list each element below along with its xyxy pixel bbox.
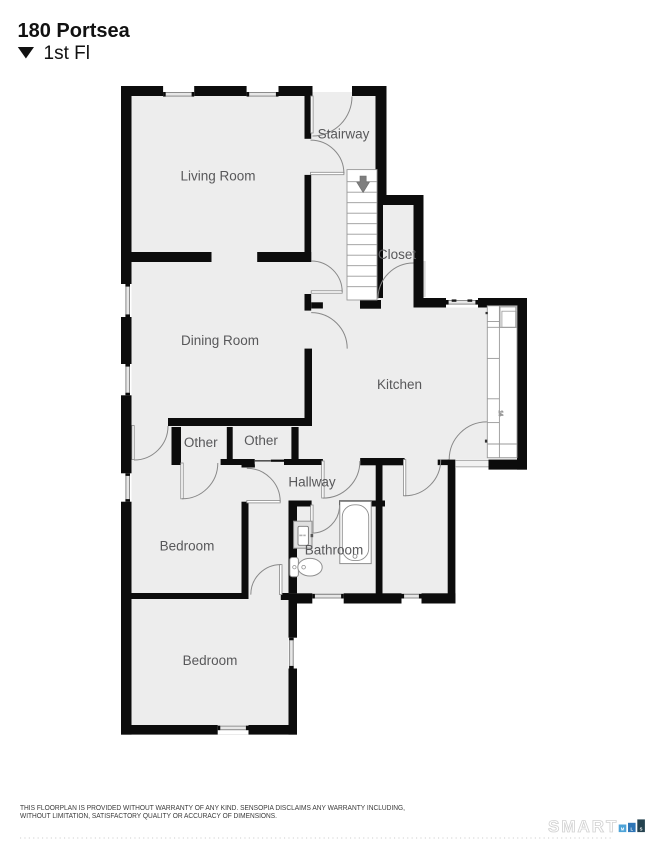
svg-text:Dining Room: Dining Room	[181, 333, 259, 348]
svg-text:SMART: SMART	[548, 817, 618, 836]
svg-text:Kitchen: Kitchen	[377, 377, 422, 392]
svg-text:Hallway: Hallway	[288, 475, 336, 490]
svg-text:Bedroom: Bedroom	[183, 653, 238, 668]
svg-text:Stairway: Stairway	[318, 127, 370, 142]
svg-text:Other: Other	[244, 433, 278, 448]
svg-text:14: 14	[497, 411, 503, 417]
svg-text:Closet: Closet	[378, 247, 417, 262]
svg-text:1st Fl: 1st Fl	[44, 43, 90, 64]
svg-text:WITHOUT LIMITATION, SATISFACTO: WITHOUT LIMITATION, SATISFACTORY QUALITY…	[20, 813, 277, 820]
svg-text:Bathroom: Bathroom	[305, 543, 364, 558]
svg-text:Bedroom: Bedroom	[160, 539, 215, 554]
svg-text:180 Portsea: 180 Portsea	[18, 20, 131, 42]
svg-text:Living Room: Living Room	[180, 169, 255, 184]
svg-text:S: S	[640, 827, 643, 832]
svg-text:L: L	[630, 827, 633, 832]
svg-text:THIS FLOORPLAN IS PROVIDED WIT: THIS FLOORPLAN IS PROVIDED WITHOUT WARRA…	[20, 805, 405, 812]
svg-text:M: M	[621, 827, 625, 832]
svg-text:Other: Other	[184, 435, 218, 450]
